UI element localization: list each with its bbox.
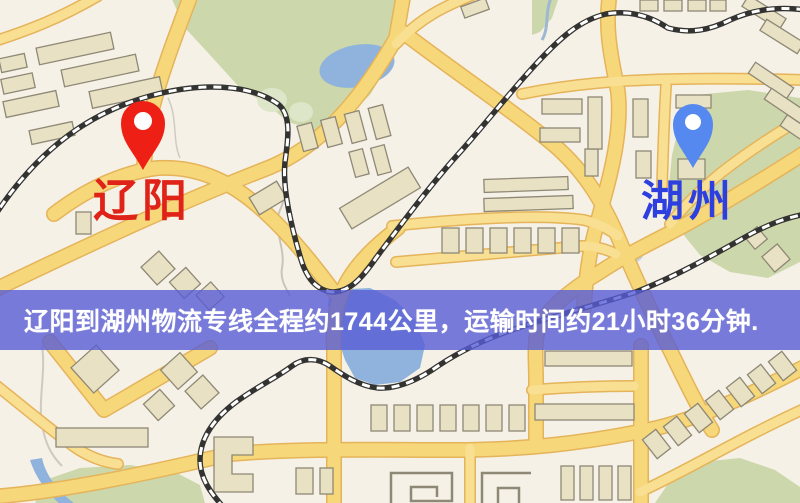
route-info-text: 辽阳到湖州物流专线全程约1744公里，运输时间约21小时36分钟. — [24, 302, 759, 338]
origin-pin-hole — [134, 112, 152, 130]
origin-city-label: 辽阳 — [93, 175, 191, 226]
destination-pin-hole — [685, 114, 701, 130]
route-info-banner: 辽阳到湖州物流专线全程约1744公里，运输时间约21小时36分钟. — [0, 290, 800, 350]
map-image: 辽阳 湖州 — [0, 0, 800, 503]
destination-city-label: 湖州 — [641, 178, 735, 226]
logistics-route-map: 辽阳 湖州 辽阳到湖州物流专线全程约1744公里，运输时间约21小时36分钟. — [0, 0, 800, 503]
